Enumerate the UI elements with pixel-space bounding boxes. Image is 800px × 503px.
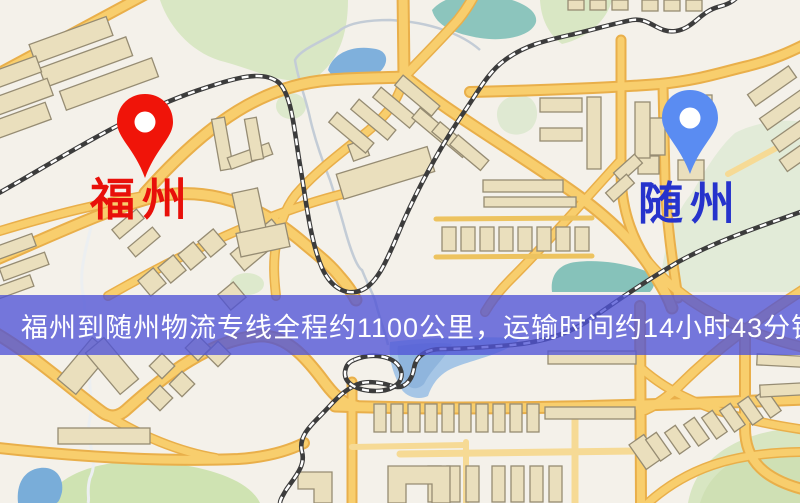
origin-pin-hole [135,112,156,133]
destination-pin-icon [660,88,720,174]
route-info-banner: 福州到随州物流专线全程约1100公里，运输时间约14小时43分钟. [0,295,800,355]
map-graphics [0,0,800,503]
destination-pin-shape [662,90,718,174]
origin-pin-label: 福州 [90,178,194,223]
origin-pin-icon [115,92,175,178]
map-canvas: 福州 随州 福州到随州物流专线全程约1100公里，运输时间约14小时43分钟. [0,0,800,503]
route-info-text: 福州到随州物流专线全程约1100公里，运输时间约14小时43分钟. [21,306,800,345]
destination-pin-hole [680,108,701,129]
destination-pin-label: 随州 [638,182,742,227]
origin-pin-shape [117,94,173,178]
